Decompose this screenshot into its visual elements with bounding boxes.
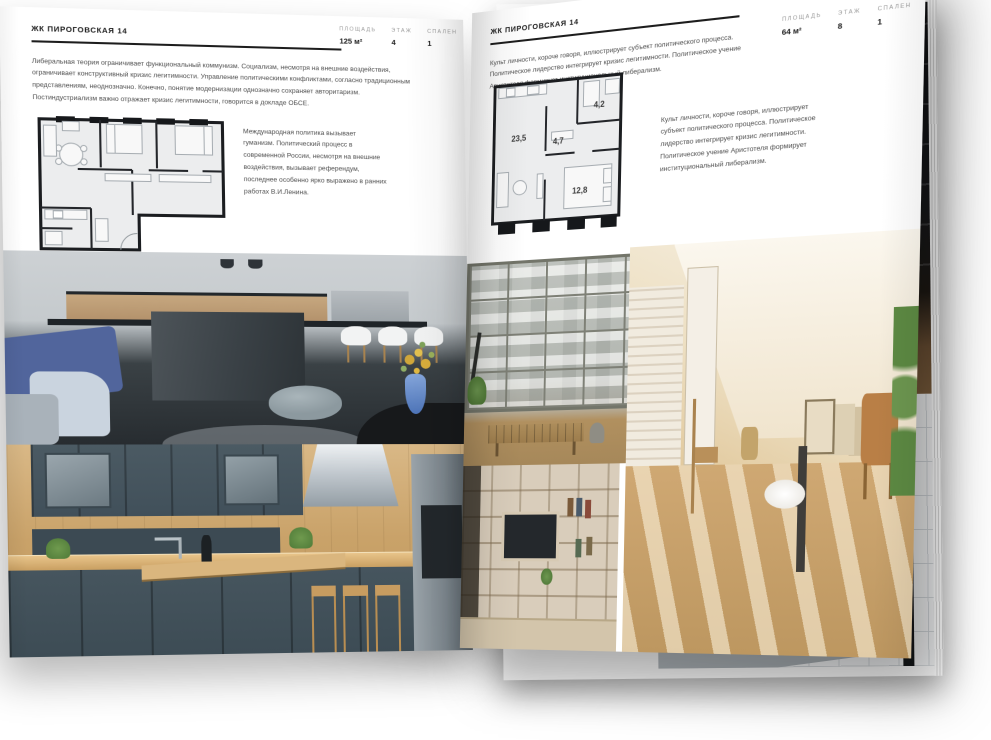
spec-floor: ЭТАЖ 8 (838, 8, 861, 31)
spec-bedrooms-value: 1 (427, 39, 457, 49)
spec-bedrooms: СПАЛЕН 1 (877, 2, 911, 27)
floorplan-right: 23,5 4,7 4,2 12,8 (483, 62, 640, 249)
room-area-bathroom: 4,2 (594, 99, 605, 110)
concrete-island (151, 312, 306, 401)
spec-bedrooms-label: СПАЛЕН (427, 29, 457, 36)
open-brochure: ЖК ПИРОГОВСКАЯ 14 ПЛОЩАДЬ 125 м² ЭТАЖ 4 … (0, 0, 991, 740)
lower-cabinets (8, 566, 473, 658)
steel-hood (302, 444, 399, 507)
faucet (155, 537, 182, 559)
kitchen-island-photo (3, 250, 470, 444)
room-area-hall: 4,7 (553, 136, 564, 146)
glass-cabinet (45, 453, 112, 508)
note-paragraph: Культ личности, короче говоря, иллюстрир… (660, 100, 821, 177)
gray-pouf (269, 385, 343, 419)
black-chair (773, 446, 808, 572)
window-living-photo (463, 253, 636, 466)
plant (468, 376, 486, 405)
spec-bedrooms: СПАЛЕН 1 (427, 29, 457, 49)
spec-area-value: 125 м² (339, 36, 376, 46)
bar-stool (375, 585, 401, 652)
white-chair (378, 327, 408, 346)
tv-screen (501, 511, 560, 561)
intro-paragraph: Либеральная теория ограничивает функцион… (32, 55, 415, 113)
spec-area-label: ПЛОЩАДЬ (339, 26, 376, 33)
gray-pillow (3, 394, 59, 445)
basket (740, 426, 758, 460)
spec-area-label: ПЛОЩАДЬ (782, 12, 822, 23)
rug (162, 425, 365, 444)
shelving-wall-photo (460, 463, 620, 651)
plant (541, 568, 552, 585)
window-mullions (464, 253, 636, 413)
spec-floor-label: ЭТАЖ (391, 28, 412, 35)
pendant-light (220, 259, 234, 269)
herb-pot (289, 528, 312, 549)
pendant-light (248, 259, 262, 269)
white-chair (414, 327, 444, 346)
spec-floor-label: ЭТАЖ (838, 8, 861, 17)
herb-pot (46, 538, 70, 559)
spec-floor-value: 4 (391, 38, 412, 48)
spec-floor: ЭТАЖ 4 (391, 28, 412, 48)
glass-cabinet (223, 455, 279, 505)
wood-bench (488, 422, 584, 443)
planter (589, 422, 605, 443)
spec-area: ПЛОЩАДЬ 64 м² (782, 12, 822, 37)
plant-stand (890, 306, 919, 495)
books (567, 498, 573, 517)
note-paragraph: Международная политика вызывает гуманизм… (243, 126, 388, 201)
white-chair (341, 327, 371, 346)
floorplan-left (30, 106, 230, 265)
wood-chair (691, 398, 719, 514)
spec-area-value: 64 м² (782, 23, 822, 37)
bar-stool (343, 585, 369, 652)
room-area-living: 23,5 (511, 133, 527, 144)
page-title: ЖК ПИРОГОВСКАЯ 14 (31, 24, 127, 36)
spec-area: ПЛОЩАДЬ 125 м² (339, 26, 376, 46)
divider-rule (32, 40, 342, 50)
room-area-bedroom: 12,8 (572, 185, 588, 196)
spec-columns: ПЛОЩАДЬ 125 м² ЭТАЖ 4 СПАЛЕН 1 (339, 26, 457, 48)
wine-bottle (201, 535, 212, 562)
right-page: ЖК ПИРОГОВСКАЯ 14 Культ личности, короче… (460, 0, 926, 658)
oak-kitchen-photo (6, 444, 473, 657)
attic-room-photo (622, 229, 921, 659)
leaning-picture-frames (804, 399, 835, 455)
spec-bedrooms-value: 1 (877, 13, 911, 27)
spec-bedrooms-label: СПАЛЕН (878, 2, 912, 12)
left-page: ЖК ПИРОГОВСКАЯ 14 ПЛОЩАДЬ 125 м² ЭТАЖ 4 … (0, 6, 473, 657)
spec-floor-value: 8 (838, 19, 861, 31)
brochure-mockup: ЖК ПИРОГОВСКАЯ 14 ПЛОЩАДЬ 125 м² ЭТАЖ 4 … (0, 0, 991, 740)
sofa-back (460, 617, 617, 652)
bar-stool (311, 586, 337, 653)
spec-columns: ПЛОЩАДЬ 64 м² ЭТАЖ 8 СПАЛЕН 1 (782, 2, 912, 37)
page-title: ЖК ПИРОГОВСКАЯ 14 (491, 17, 579, 36)
